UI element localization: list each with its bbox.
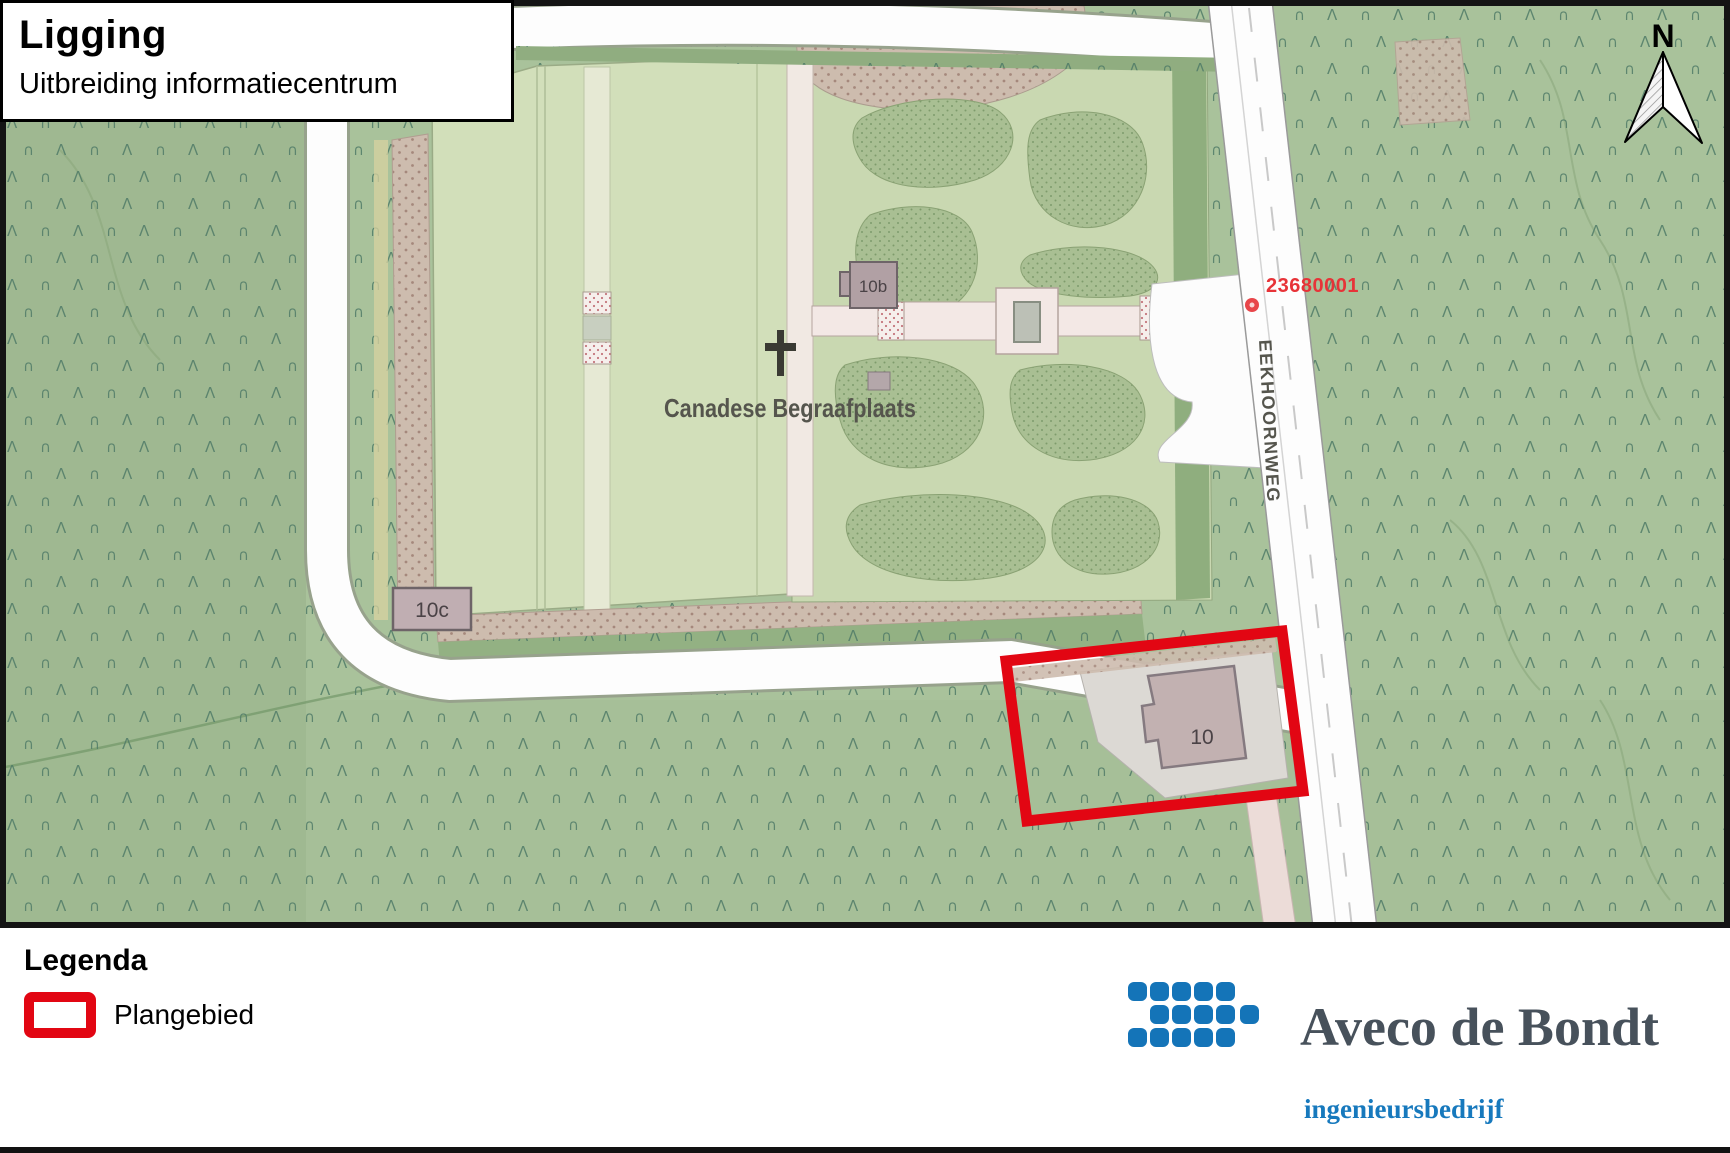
memorial-monument: [1014, 302, 1040, 342]
company-tagline: ingenieursbedrijf: [1304, 1094, 1504, 1125]
plan-area-swatch: [24, 992, 96, 1038]
legend-item-plangebied: Plangebied: [24, 992, 254, 1038]
parcel-reference-marker: [1245, 298, 1259, 312]
building-10b-label: 10b: [859, 277, 887, 296]
title-box: Ligging Uitbreiding informatiecentrum: [0, 0, 514, 122]
legend-heading: Legenda: [24, 944, 147, 978]
cemetery-label: Canadese Begraafplaats: [664, 393, 916, 423]
north-label: N: [1651, 18, 1674, 54]
company-name: Aveco de Bondt: [1300, 996, 1659, 1058]
company-logo: Aveco de Bondt ingenieursbedrijf: [1128, 978, 1708, 1138]
map-title: Ligging: [19, 13, 495, 58]
building-10c: 10c: [393, 588, 471, 630]
site-location-map: Λ∩ ∩Λ: [0, 0, 1730, 928]
map-subtitle: Uitbreiding informatiecentrum: [19, 68, 495, 101]
lawn-center-path: [583, 67, 611, 613]
building-10c-label: 10c: [415, 599, 449, 622]
cemetery-west-path: [392, 134, 434, 626]
parcel-reference-label: 23680001: [1266, 275, 1359, 297]
logo-blocks-icon: [1128, 982, 1270, 1052]
legend-item-label: Plangebied: [114, 999, 254, 1031]
page: Λ∩ ∩Λ: [0, 0, 1730, 1153]
building-10-label: 10: [1190, 726, 1213, 749]
bottom-panel: Legenda Plangebied Aveco de Bondt: [0, 928, 1730, 1153]
